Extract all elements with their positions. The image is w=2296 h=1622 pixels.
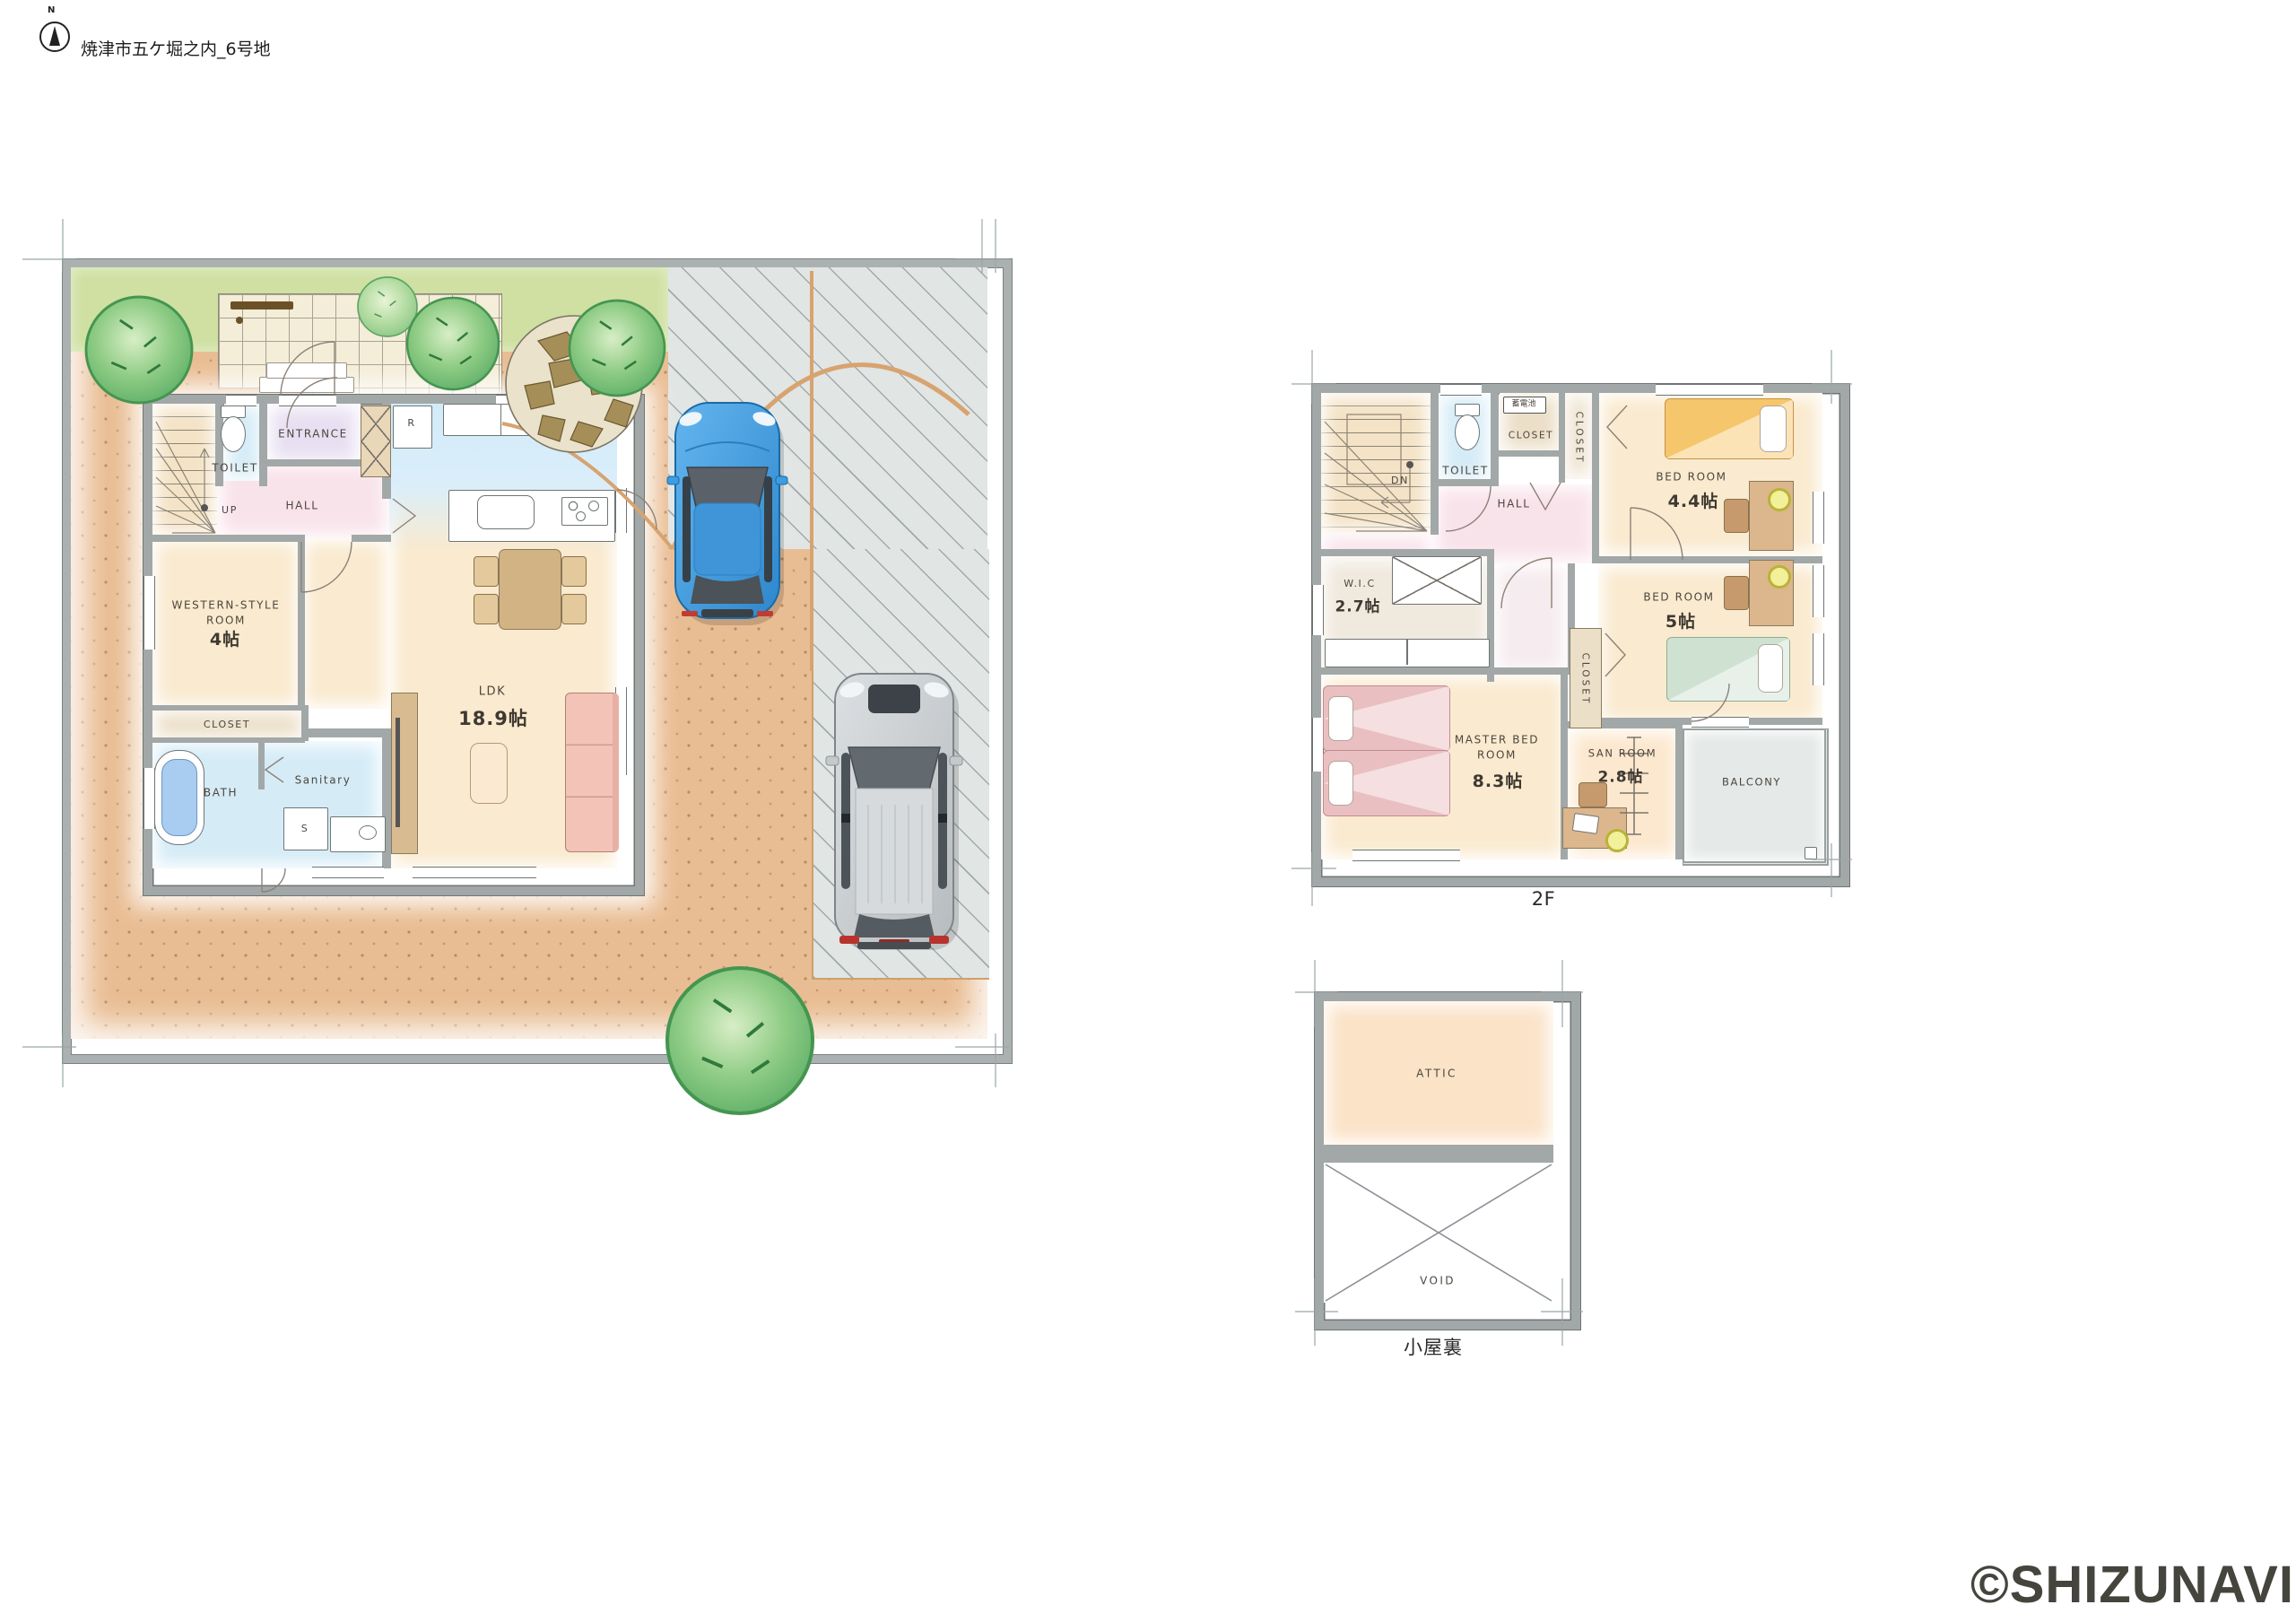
wall bbox=[1499, 450, 1563, 457]
sanroom-size: 2.8帖 bbox=[1597, 767, 1643, 789]
attic-room-label: ATTIC bbox=[1416, 1066, 1457, 1081]
western-room-label: WESTERN-STYLE ROOM bbox=[165, 598, 287, 630]
closet-right-label: CLOSET bbox=[1571, 412, 1585, 465]
balcony-door bbox=[1692, 717, 1749, 728]
stove-burner bbox=[588, 501, 599, 511]
closet-top-label: CLOSET bbox=[1509, 429, 1553, 442]
dining-chair bbox=[561, 556, 587, 587]
stove bbox=[561, 497, 608, 526]
window bbox=[1312, 585, 1324, 635]
ldk-label: LDK bbox=[479, 685, 507, 702]
tv bbox=[396, 718, 400, 827]
wic-size: 2.7帖 bbox=[1335, 597, 1380, 619]
stove-burner bbox=[576, 511, 586, 521]
closet-mid-label: CLOSET bbox=[1578, 653, 1591, 706]
wall bbox=[152, 705, 305, 711]
garden-bollard-2 bbox=[361, 317, 368, 324]
western-room-size: 4帖 bbox=[210, 628, 240, 653]
wall bbox=[152, 737, 305, 743]
compass-icon bbox=[39, 22, 70, 52]
toilet-bowl-1f bbox=[221, 416, 246, 452]
master-label: MASTER BED ROOM bbox=[1448, 733, 1546, 764]
washbasin bbox=[330, 816, 386, 852]
porch-step-lower bbox=[259, 377, 354, 393]
hall-label-2f: HALL bbox=[1497, 496, 1530, 511]
ldk-floor-west bbox=[301, 538, 389, 709]
floorplan-canvas: N 焼津市五ケ堀之内_6号地 bbox=[0, 0, 2296, 1622]
wall bbox=[303, 728, 384, 737]
window bbox=[1813, 633, 1824, 685]
toilet-bowl-2f bbox=[1455, 414, 1480, 450]
toilet-label-1f: TOILET bbox=[212, 460, 258, 475]
window bbox=[1352, 850, 1460, 861]
shoe-cabinet bbox=[361, 405, 391, 477]
void-label: VOID bbox=[1420, 1273, 1456, 1288]
wall bbox=[1431, 479, 1499, 486]
sanroom-label: SAN ROOM bbox=[1588, 746, 1657, 762]
pillow bbox=[1760, 405, 1787, 452]
bath-label: BATH bbox=[204, 785, 238, 800]
dining-chair bbox=[474, 556, 499, 587]
bedroom1-label: BED ROOM bbox=[1656, 469, 1726, 484]
kitchen-side-door bbox=[615, 488, 627, 533]
stairs-1f bbox=[152, 404, 217, 536]
wall bbox=[1491, 393, 1499, 486]
washer-label: S bbox=[301, 822, 309, 836]
balcony-label: BALCONY bbox=[1722, 775, 1781, 790]
hall-label-1f: HALL bbox=[285, 498, 318, 513]
wall bbox=[352, 535, 391, 542]
pillow bbox=[1328, 761, 1353, 806]
wic-shelf-divider bbox=[1406, 640, 1408, 665]
balcony bbox=[1683, 728, 1829, 866]
desk-lamp-icon bbox=[1768, 565, 1791, 589]
sofa bbox=[565, 693, 619, 852]
compass-north-label: N bbox=[48, 5, 55, 15]
bedroom2-size: 5帖 bbox=[1665, 610, 1696, 635]
entrance-door bbox=[279, 395, 336, 406]
dn-label: DN bbox=[1391, 474, 1409, 488]
plan-title: 焼津市五ケ堀之内_6号地 bbox=[81, 36, 271, 60]
battery-label: 蓄電池 bbox=[1511, 398, 1535, 410]
wall bbox=[1675, 721, 1683, 859]
pillow bbox=[1328, 696, 1353, 741]
driveway-concrete bbox=[668, 267, 987, 549]
dining-chair bbox=[474, 594, 499, 624]
sanitary-label: Sanitary bbox=[295, 772, 352, 788]
kitchen-sink bbox=[477, 495, 535, 529]
desk-lamp-icon bbox=[1605, 829, 1629, 852]
stairs-2f bbox=[1321, 393, 1431, 533]
window bbox=[1813, 565, 1824, 617]
parking-bay-concrete bbox=[812, 549, 989, 980]
window bbox=[1656, 384, 1763, 396]
attic-plan-label: 小屋裏 bbox=[1404, 1334, 1463, 1361]
kitchen-counter-left bbox=[443, 404, 502, 436]
desk-chair bbox=[1724, 576, 1749, 610]
wic-shelf bbox=[1392, 556, 1482, 605]
wall bbox=[1559, 393, 1565, 483]
wall bbox=[1592, 393, 1599, 563]
desk-chair bbox=[1724, 499, 1749, 533]
low-table bbox=[470, 743, 508, 804]
window bbox=[143, 576, 155, 650]
dining-chair bbox=[561, 594, 587, 624]
bathtub-water bbox=[161, 759, 197, 836]
toilet-label-2f: TOILET bbox=[1442, 463, 1489, 478]
window bbox=[1813, 492, 1824, 544]
master-size: 8.3帖 bbox=[1473, 770, 1524, 795]
garden-bench bbox=[230, 301, 293, 310]
dining-table bbox=[499, 549, 561, 630]
ldk-size: 18.9帖 bbox=[458, 705, 528, 732]
wall bbox=[298, 542, 305, 709]
compass-needle-icon bbox=[49, 26, 60, 46]
wall bbox=[267, 459, 361, 467]
kitchen-counter-right bbox=[500, 404, 617, 436]
up-label: UP bbox=[222, 503, 238, 518]
porch-step-upper bbox=[266, 362, 347, 379]
floor2-label: 2F bbox=[1532, 885, 1555, 912]
closet-label-1f: CLOSET bbox=[204, 718, 250, 732]
wall bbox=[258, 737, 265, 789]
garden-bollard-1 bbox=[236, 317, 243, 324]
open-book bbox=[1572, 813, 1600, 834]
pillow bbox=[1758, 644, 1783, 693]
wall bbox=[1324, 1145, 1553, 1163]
wall bbox=[1321, 549, 1493, 556]
wall bbox=[259, 404, 267, 486]
watermark: ©SHIZUNAVI bbox=[1970, 1555, 2294, 1615]
wall bbox=[1431, 393, 1439, 535]
wall bbox=[1321, 667, 1575, 675]
fridge-label: R bbox=[407, 416, 415, 431]
balcony-drain bbox=[1805, 847, 1817, 859]
entrance-label: ENTRANCE bbox=[278, 426, 348, 441]
living-window bbox=[413, 867, 536, 878]
desk-lamp-icon bbox=[1768, 488, 1791, 511]
washbasin-bowl bbox=[359, 825, 377, 840]
window bbox=[1440, 384, 1482, 396]
wic-label: W.I.C bbox=[1344, 577, 1376, 591]
hall-corridor-2f bbox=[1494, 563, 1568, 675]
bedroom2-label: BED ROOM bbox=[1643, 589, 1714, 605]
wall bbox=[152, 535, 305, 542]
bedroom1-size: 4.4帖 bbox=[1668, 490, 1719, 515]
window bbox=[312, 867, 384, 878]
